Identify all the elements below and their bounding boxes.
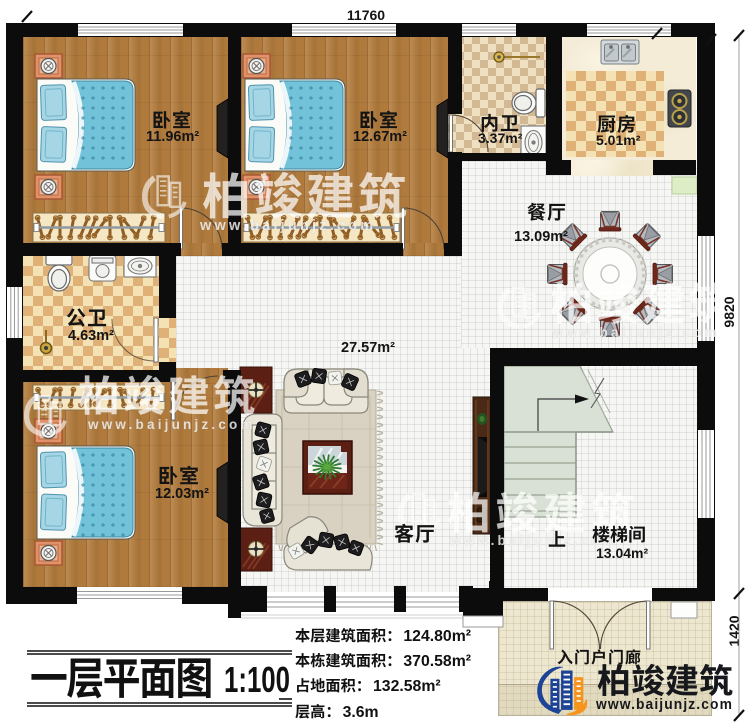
svg-text:370.58m²: 370.58m² [403, 653, 471, 670]
svg-text:4.63m²: 4.63m² [68, 328, 114, 344]
svg-text:www.baijunjz.com: www.baijunjz.com [551, 325, 720, 340]
svg-text:12.03m²: 12.03m² [155, 486, 209, 502]
svg-text:11760: 11760 [347, 7, 385, 23]
svg-text:1420: 1420 [726, 615, 742, 646]
svg-text:124.80m²: 124.80m² [403, 628, 471, 645]
svg-text:www.baijunjz.com: www.baijunjz.com [87, 417, 256, 432]
svg-text:9820: 9820 [721, 296, 737, 327]
svg-text:27.57m²: 27.57m² [341, 340, 395, 356]
svg-text:www.baijunjz.com: www.baijunjz.com [595, 696, 733, 713]
svg-text:5.01m²: 5.01m² [596, 132, 641, 148]
svg-text:1:100: 1:100 [224, 659, 290, 700]
svg-text:www.baijunjz.com: www.baijunjz.com [199, 218, 376, 234]
svg-text:13.09m²: 13.09m² [514, 229, 568, 245]
svg-text:3.37m²: 3.37m² [478, 130, 523, 146]
svg-text:13.04m²: 13.04m² [596, 545, 648, 561]
svg-text:12.67m²: 12.67m² [353, 129, 407, 145]
svg-text:132.58m²: 132.58m² [373, 678, 441, 695]
svg-text:www.baijunjz.com: www.baijunjz.com [449, 533, 618, 548]
svg-text:11.96m²: 11.96m² [146, 129, 199, 145]
svg-text:3.6m: 3.6m [343, 704, 379, 721]
